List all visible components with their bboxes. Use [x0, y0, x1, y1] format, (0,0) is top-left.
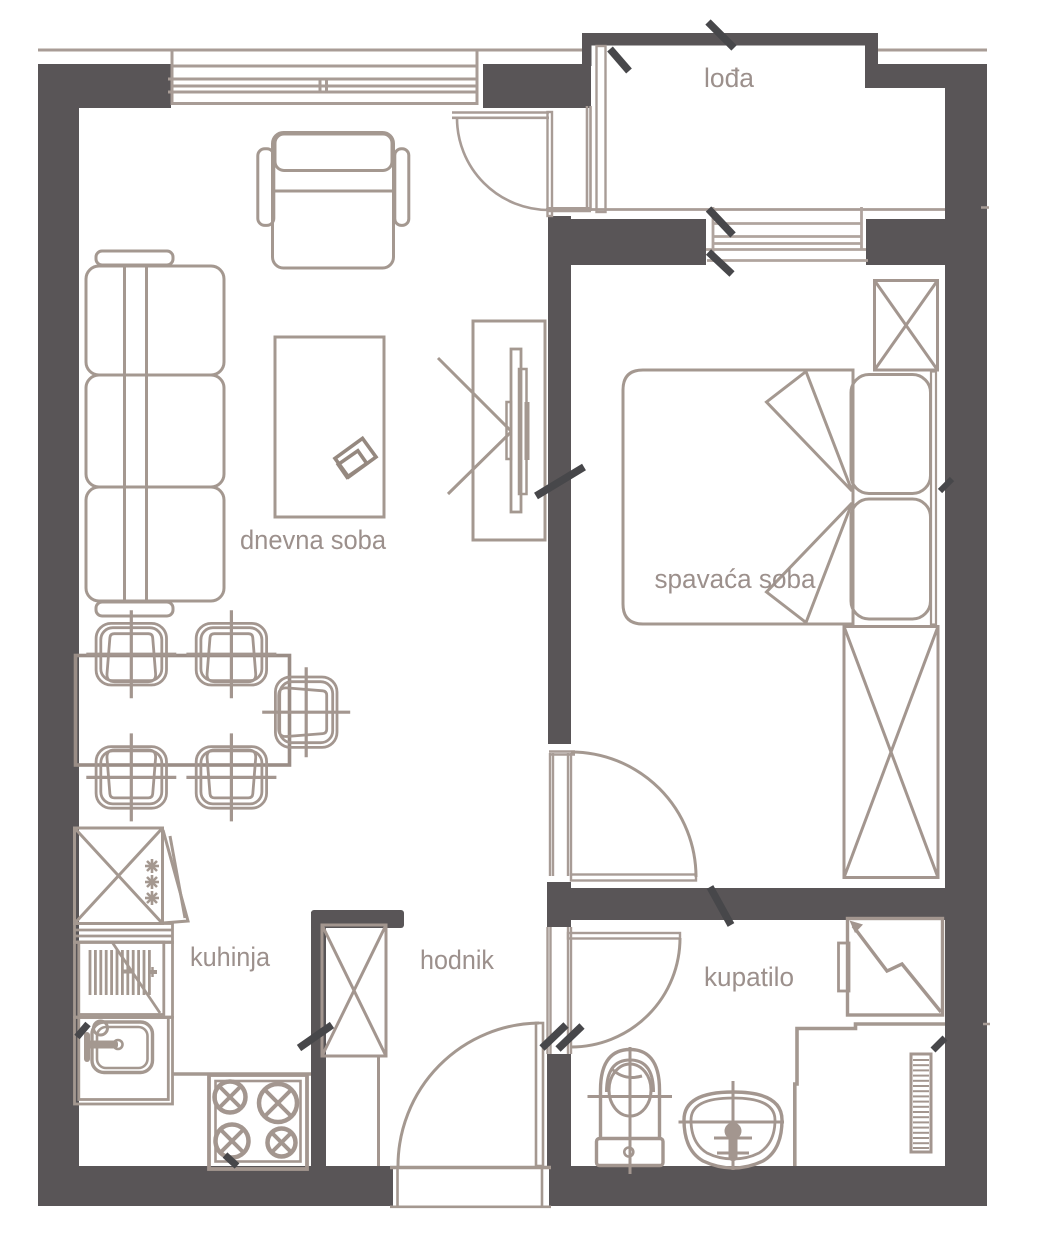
svg-text:hodnik: hodnik	[420, 945, 494, 975]
svg-text:kuhinja: kuhinja	[190, 942, 271, 972]
svg-text:kupatilo: kupatilo	[704, 962, 794, 992]
svg-text:spavaća soba: spavaća soba	[655, 564, 817, 594]
svg-text:lođa: lođa	[704, 63, 755, 93]
svg-text:dnevna soba: dnevna soba	[240, 525, 387, 555]
